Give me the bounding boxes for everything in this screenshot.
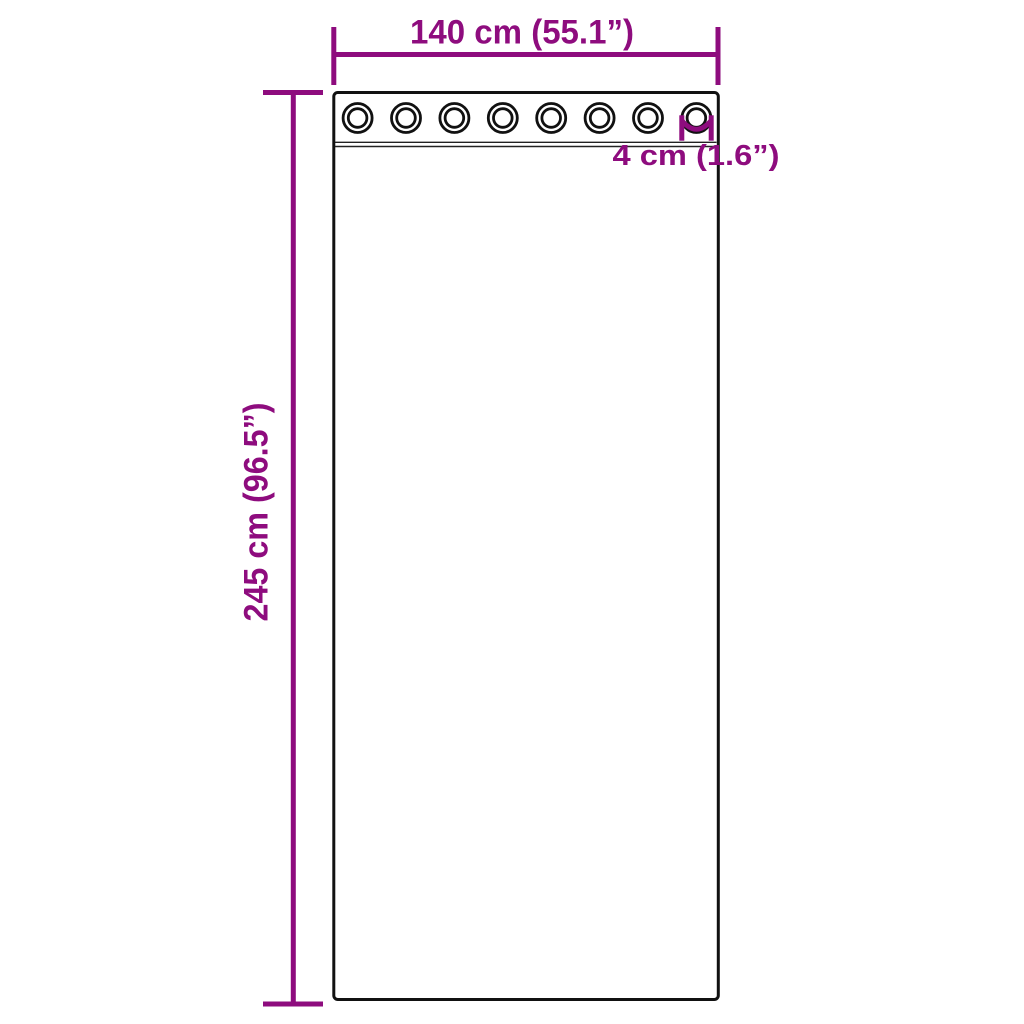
svg-text:4 cm (1.6”): 4 cm (1.6”): [613, 140, 780, 172]
svg-text:245 cm (96.5”): 245 cm (96.5”): [238, 403, 276, 622]
svg-text:140 cm (55.1”): 140 cm (55.1”): [410, 14, 634, 52]
